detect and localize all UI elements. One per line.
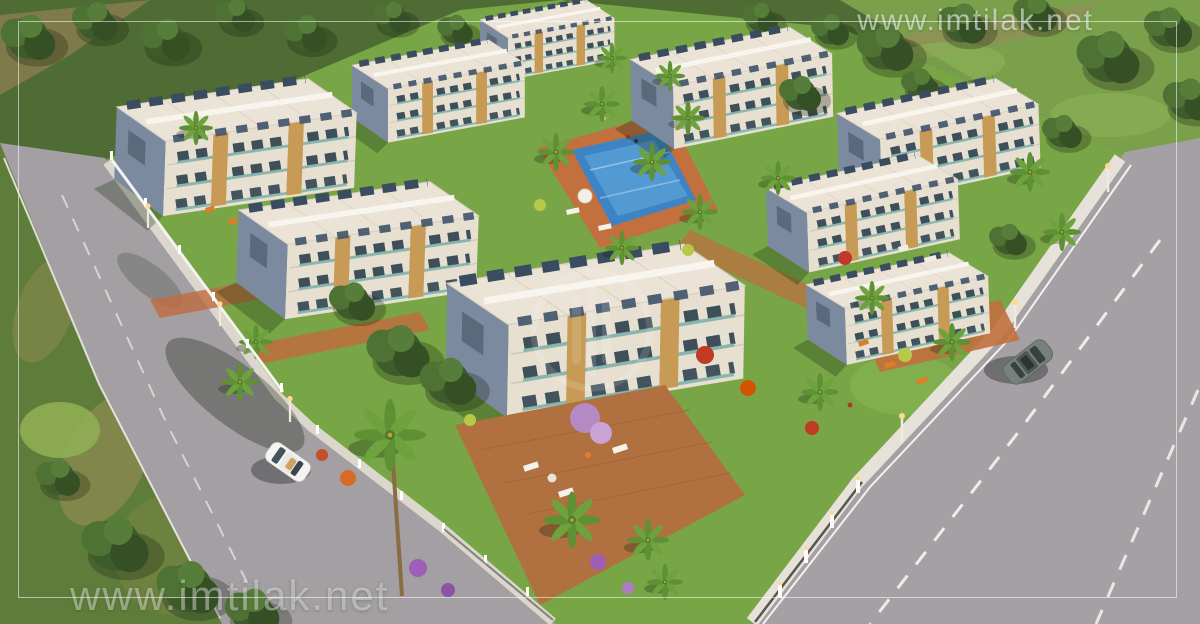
watermark-bottom-left: www.imtilak.net <box>70 572 389 620</box>
pool-parasol <box>578 189 592 203</box>
aerial-render-scene: www.imtilak.net www.imtilak.net <box>0 0 1200 624</box>
scene-graphics <box>0 0 1200 624</box>
person-in-garden <box>848 403 853 408</box>
watermark-top-right: www.imtilak.net <box>857 4 1094 38</box>
